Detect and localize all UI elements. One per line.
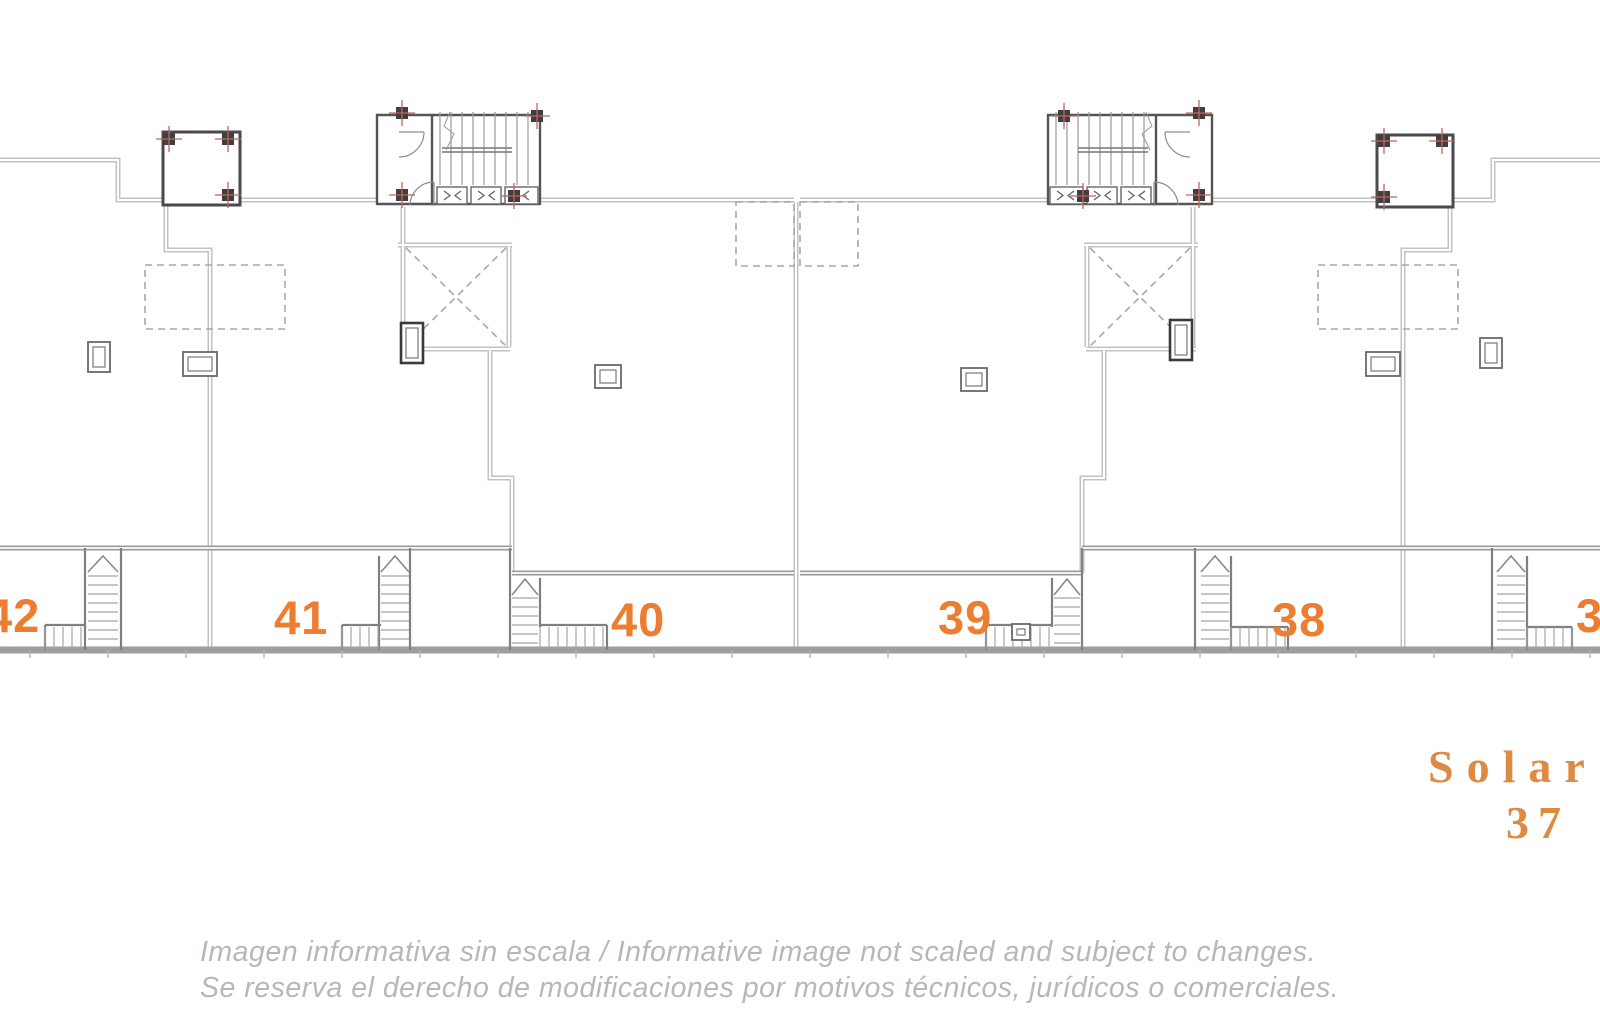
boundary-walls bbox=[0, 160, 1600, 650]
floor-plan-page: 42 41 40 39 38 37 Solar 37 Imagen inform… bbox=[0, 0, 1600, 1024]
unit-label-38: 38 bbox=[1272, 592, 1326, 647]
door-arc bbox=[1154, 132, 1190, 206]
legend-title: Solar bbox=[1428, 740, 1598, 793]
dashed-projections bbox=[145, 202, 1458, 346]
unit-label-40: 40 bbox=[611, 592, 665, 647]
unit-label-37: 37 bbox=[1576, 588, 1600, 643]
terrace-front-walls bbox=[0, 548, 1600, 573]
unit-label-41: 41 bbox=[274, 590, 328, 645]
column-markers bbox=[156, 100, 1455, 210]
stair-core-right bbox=[1048, 112, 1212, 206]
floor-plan-drawing bbox=[0, 0, 1600, 1024]
unit-label-42: 42 bbox=[0, 588, 40, 643]
base-line bbox=[0, 650, 1600, 658]
legend-number: 37 bbox=[1506, 796, 1570, 849]
disclaimer-line-1: Imagen informativa sin escala / Informat… bbox=[200, 936, 1316, 969]
disclaimer-line-2: Se reserva el derecho de modificaciones … bbox=[200, 972, 1339, 1005]
unit-label-39: 39 bbox=[938, 590, 992, 645]
